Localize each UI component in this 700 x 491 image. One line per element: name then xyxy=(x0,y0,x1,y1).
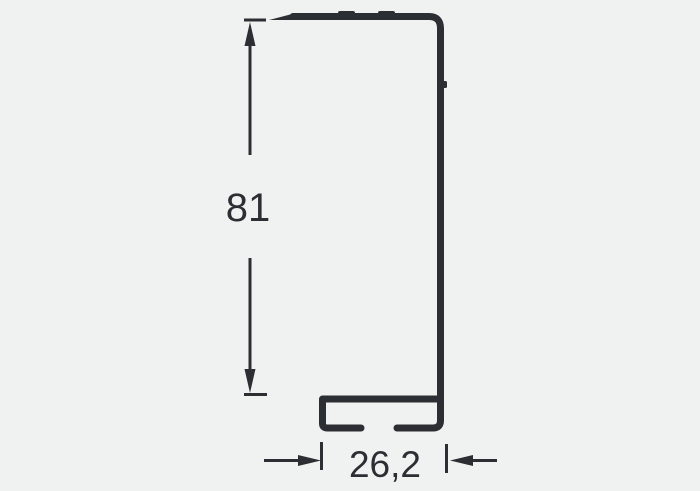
profile-diagram-canvas: 81 26,2 xyxy=(0,0,700,491)
profile-flange-web-path xyxy=(293,17,441,429)
technical-drawing: 81 26,2 xyxy=(0,0,700,491)
profile-channel-path xyxy=(323,399,441,428)
height-dim-arrow-up-icon xyxy=(245,22,256,46)
width-dim-arrow-left-icon xyxy=(450,455,473,466)
width-dimension: 26,2 xyxy=(264,442,497,485)
flange-notch-left xyxy=(338,11,355,17)
width-dim-arrow-right-icon xyxy=(298,455,321,466)
height-dimension: 81 xyxy=(226,20,271,395)
flange-taper-tip xyxy=(269,13,296,20)
web-notch xyxy=(443,81,447,88)
width-dimension-label: 26,2 xyxy=(349,444,421,485)
profile-outline xyxy=(269,11,447,428)
flange-notch-right xyxy=(378,11,395,17)
height-dimension-label: 81 xyxy=(226,186,271,230)
height-dim-arrow-down-icon xyxy=(245,369,256,393)
